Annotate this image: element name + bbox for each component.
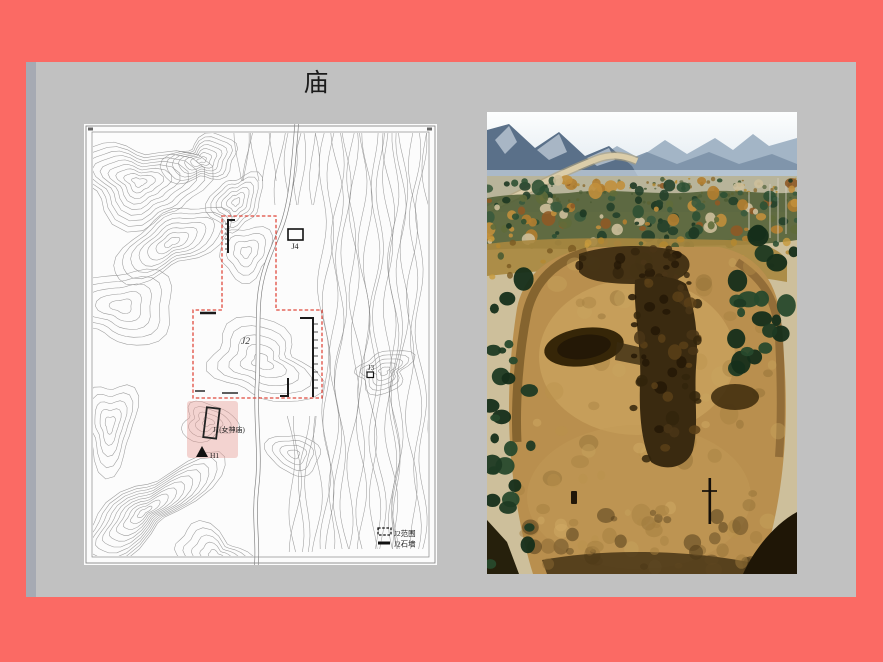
site-contour-map: J2 J4 J3 J1(女神庙) H1 J2范围 J2石墙 — [84, 124, 437, 565]
slide-title: 庙 — [266, 67, 366, 100]
j4-label: J4 — [291, 242, 298, 251]
j3-structure — [367, 372, 374, 378]
photo-svg — [487, 112, 797, 574]
h1-label: H1 — [210, 451, 219, 460]
map-frame-tick-right — [427, 128, 432, 131]
j2-label: J2 — [241, 337, 250, 347]
j3-label: J3 — [368, 364, 375, 372]
legend-wall-label: J2石墙 — [394, 539, 416, 549]
survey-stake — [709, 478, 712, 524]
excavation-aerial-photo — [487, 112, 797, 574]
slide-edge-strip — [26, 62, 36, 597]
j4-structure — [288, 229, 303, 240]
slide: 庙 — [26, 62, 856, 597]
legend-range-label: J2范围 — [394, 528, 416, 538]
contour-map-svg: J2 J4 J3 J1(女神庙) H1 J2范围 J2石墙 — [84, 124, 437, 565]
right-pit — [711, 384, 759, 410]
j1-label: J1(女神庙) — [213, 425, 246, 434]
stump — [571, 491, 577, 504]
map-frame-tick-left — [88, 128, 93, 131]
